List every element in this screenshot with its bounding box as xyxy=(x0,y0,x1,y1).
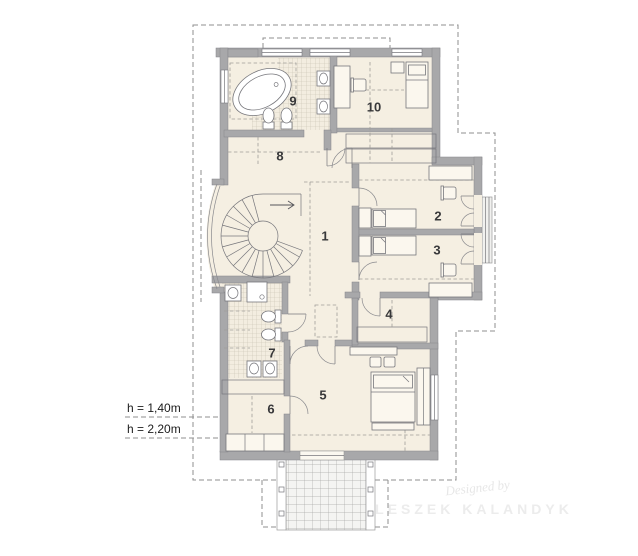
upper-roof-step xyxy=(263,38,390,48)
room-label-1: 1 xyxy=(321,229,328,244)
watermark: Designed by LESZEK KALANDYK xyxy=(375,477,573,517)
balcony-door-opening xyxy=(474,233,482,265)
watermark-name: LESZEK KALANDYK xyxy=(375,501,573,517)
room-label-5: 5 xyxy=(319,388,326,403)
window xyxy=(262,49,302,56)
chair-icon xyxy=(441,263,456,277)
room-label-8: 8 xyxy=(276,149,283,164)
sink-icon xyxy=(247,361,261,377)
floor-plan-canvas: h = 1,40m h = 2,20m xyxy=(0,0,638,556)
bed-icon xyxy=(372,209,416,228)
chair-icon xyxy=(351,78,366,92)
sink-icon xyxy=(263,361,277,377)
height-label-140: h = 1,40m xyxy=(127,401,181,415)
room-label-6: 6 xyxy=(267,402,274,417)
terrace-door xyxy=(300,451,344,460)
room-label-9: 9 xyxy=(289,94,296,109)
window xyxy=(431,375,438,420)
bed-icon xyxy=(371,372,415,422)
nightstand-icon xyxy=(359,208,371,228)
pouf-icon xyxy=(370,357,381,367)
desk-icon xyxy=(334,66,350,108)
shelf-icon xyxy=(350,347,397,355)
room-label-7: 7 xyxy=(268,346,275,361)
terrace xyxy=(277,458,375,530)
room-label-4: 4 xyxy=(385,307,393,322)
washbasin-icon xyxy=(225,285,241,301)
floor-plan-drawing: h = 1,40m h = 2,20m xyxy=(0,0,638,556)
toilet-icon xyxy=(262,328,282,341)
pouf-icon xyxy=(384,357,395,367)
window xyxy=(310,49,350,56)
room-label-2: 2 xyxy=(434,209,441,224)
watermark-prefix: Designed by xyxy=(444,477,511,499)
washbasin-icon xyxy=(317,71,330,86)
room-label-3: 3 xyxy=(433,243,440,258)
window xyxy=(392,49,422,56)
nightstand-icon xyxy=(391,62,404,73)
bed-icon xyxy=(406,62,428,108)
toilet-icon xyxy=(263,108,274,129)
desk-icon xyxy=(429,166,472,180)
toilet-icon xyxy=(281,108,292,129)
window xyxy=(221,70,228,103)
balcony-door-opening xyxy=(474,195,482,227)
bench-icon xyxy=(372,423,414,430)
room-label-10: 10 xyxy=(367,100,381,115)
nightstand-icon xyxy=(359,236,371,256)
terrace-grid xyxy=(286,458,366,530)
chair-icon xyxy=(441,186,456,200)
toilet-icon xyxy=(262,310,282,323)
cabinet-row xyxy=(226,434,284,451)
shower-icon xyxy=(247,282,267,302)
washbasin-icon xyxy=(317,99,330,114)
chimney xyxy=(228,49,258,57)
desk-icon xyxy=(429,283,472,297)
balcony-right xyxy=(482,197,492,263)
wardrobe-icon xyxy=(417,368,430,425)
bed-icon xyxy=(372,236,416,255)
height-label-220: h = 2,20m xyxy=(127,422,181,436)
